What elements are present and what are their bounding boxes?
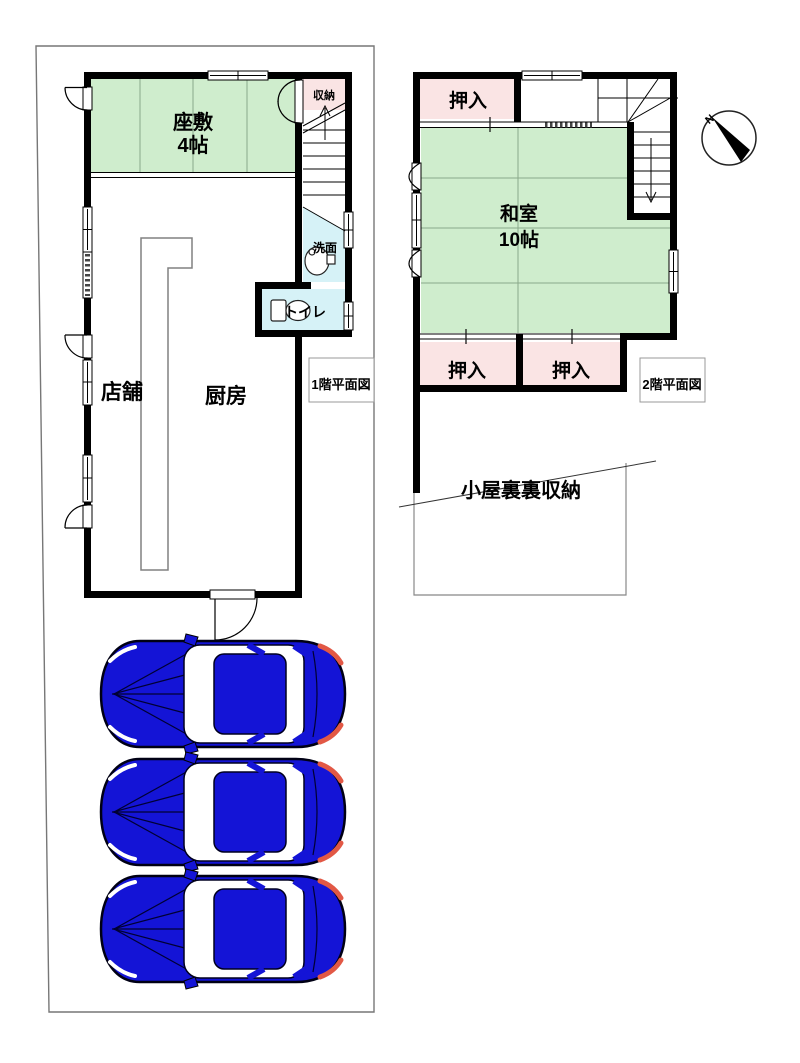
- washitsu-size-label: 10帖: [499, 228, 539, 251]
- window-left-3: [83, 455, 92, 502]
- floorplan-page: 座敷 4帖 収納 洗面 トイレ 店舗 厨房 1階平面図: [0, 0, 800, 1063]
- caption-2f-label: 2階平面図: [642, 377, 701, 392]
- entry-door-left-top: [65, 87, 92, 110]
- storage-label-1f: 収納: [313, 88, 335, 102]
- window-top-2f: [522, 71, 582, 80]
- first-floor-plan: 座敷 4帖 収納 洗面 トイレ 店舗 厨房 1階平面図: [65, 71, 374, 989]
- kitchen-counter: [141, 238, 192, 570]
- caption-1f-label: 1階平面図: [311, 377, 370, 392]
- toilet-label: トイレ: [284, 304, 326, 320]
- window-left-1: [83, 207, 92, 252]
- door-left-middle: [65, 335, 92, 358]
- compass: N: [702, 111, 756, 165]
- washroom-label: 洗面: [313, 240, 337, 255]
- louver-shutter-left: [83, 252, 92, 298]
- closet-top-label: 押入: [449, 89, 487, 112]
- washitsu-label: 和室: [500, 202, 538, 225]
- stairs-down-arrow: [646, 138, 656, 202]
- closet-bottom-right-label: 押入: [552, 359, 590, 382]
- window-top-1f: [208, 71, 268, 80]
- caption-1f: 1階平面図: [309, 358, 374, 402]
- caption-2f: 2階平面図: [640, 358, 705, 402]
- casement-window-left-1: [409, 163, 421, 190]
- parking-area: [101, 634, 345, 989]
- window-left-2: [83, 360, 92, 405]
- kitchen-label: 厨房: [205, 384, 247, 408]
- second-floor-plan: 押入 和室 10帖 押入 押入 小屋裏裏収納 2階平面図: [399, 71, 705, 595]
- closet-bottom-left-label: 押入: [448, 359, 486, 382]
- zashiki-size-label: 4帖: [177, 134, 208, 157]
- door-left-bottom: [65, 505, 92, 528]
- window-right-2f: [669, 250, 678, 293]
- parked-car-2: [101, 752, 345, 872]
- entrance-door-bottom: [210, 590, 257, 640]
- attic-label: 小屋裏裏収納: [461, 478, 581, 502]
- zashiki-label: 座敷: [173, 110, 214, 134]
- casement-window-left-2: [409, 250, 421, 277]
- window-left-2f: [412, 193, 421, 248]
- parked-car-3: [101, 869, 345, 989]
- window-east-2: [344, 302, 353, 330]
- shop-label: 店舗: [101, 380, 143, 404]
- zashiki-partition: [91, 173, 296, 178]
- floorplan-canvas: 座敷 4帖 収納 洗面 トイレ 店舗 厨房 1階平面図: [0, 0, 800, 1063]
- window-east-1: [344, 212, 353, 248]
- parked-car-1: [101, 634, 345, 754]
